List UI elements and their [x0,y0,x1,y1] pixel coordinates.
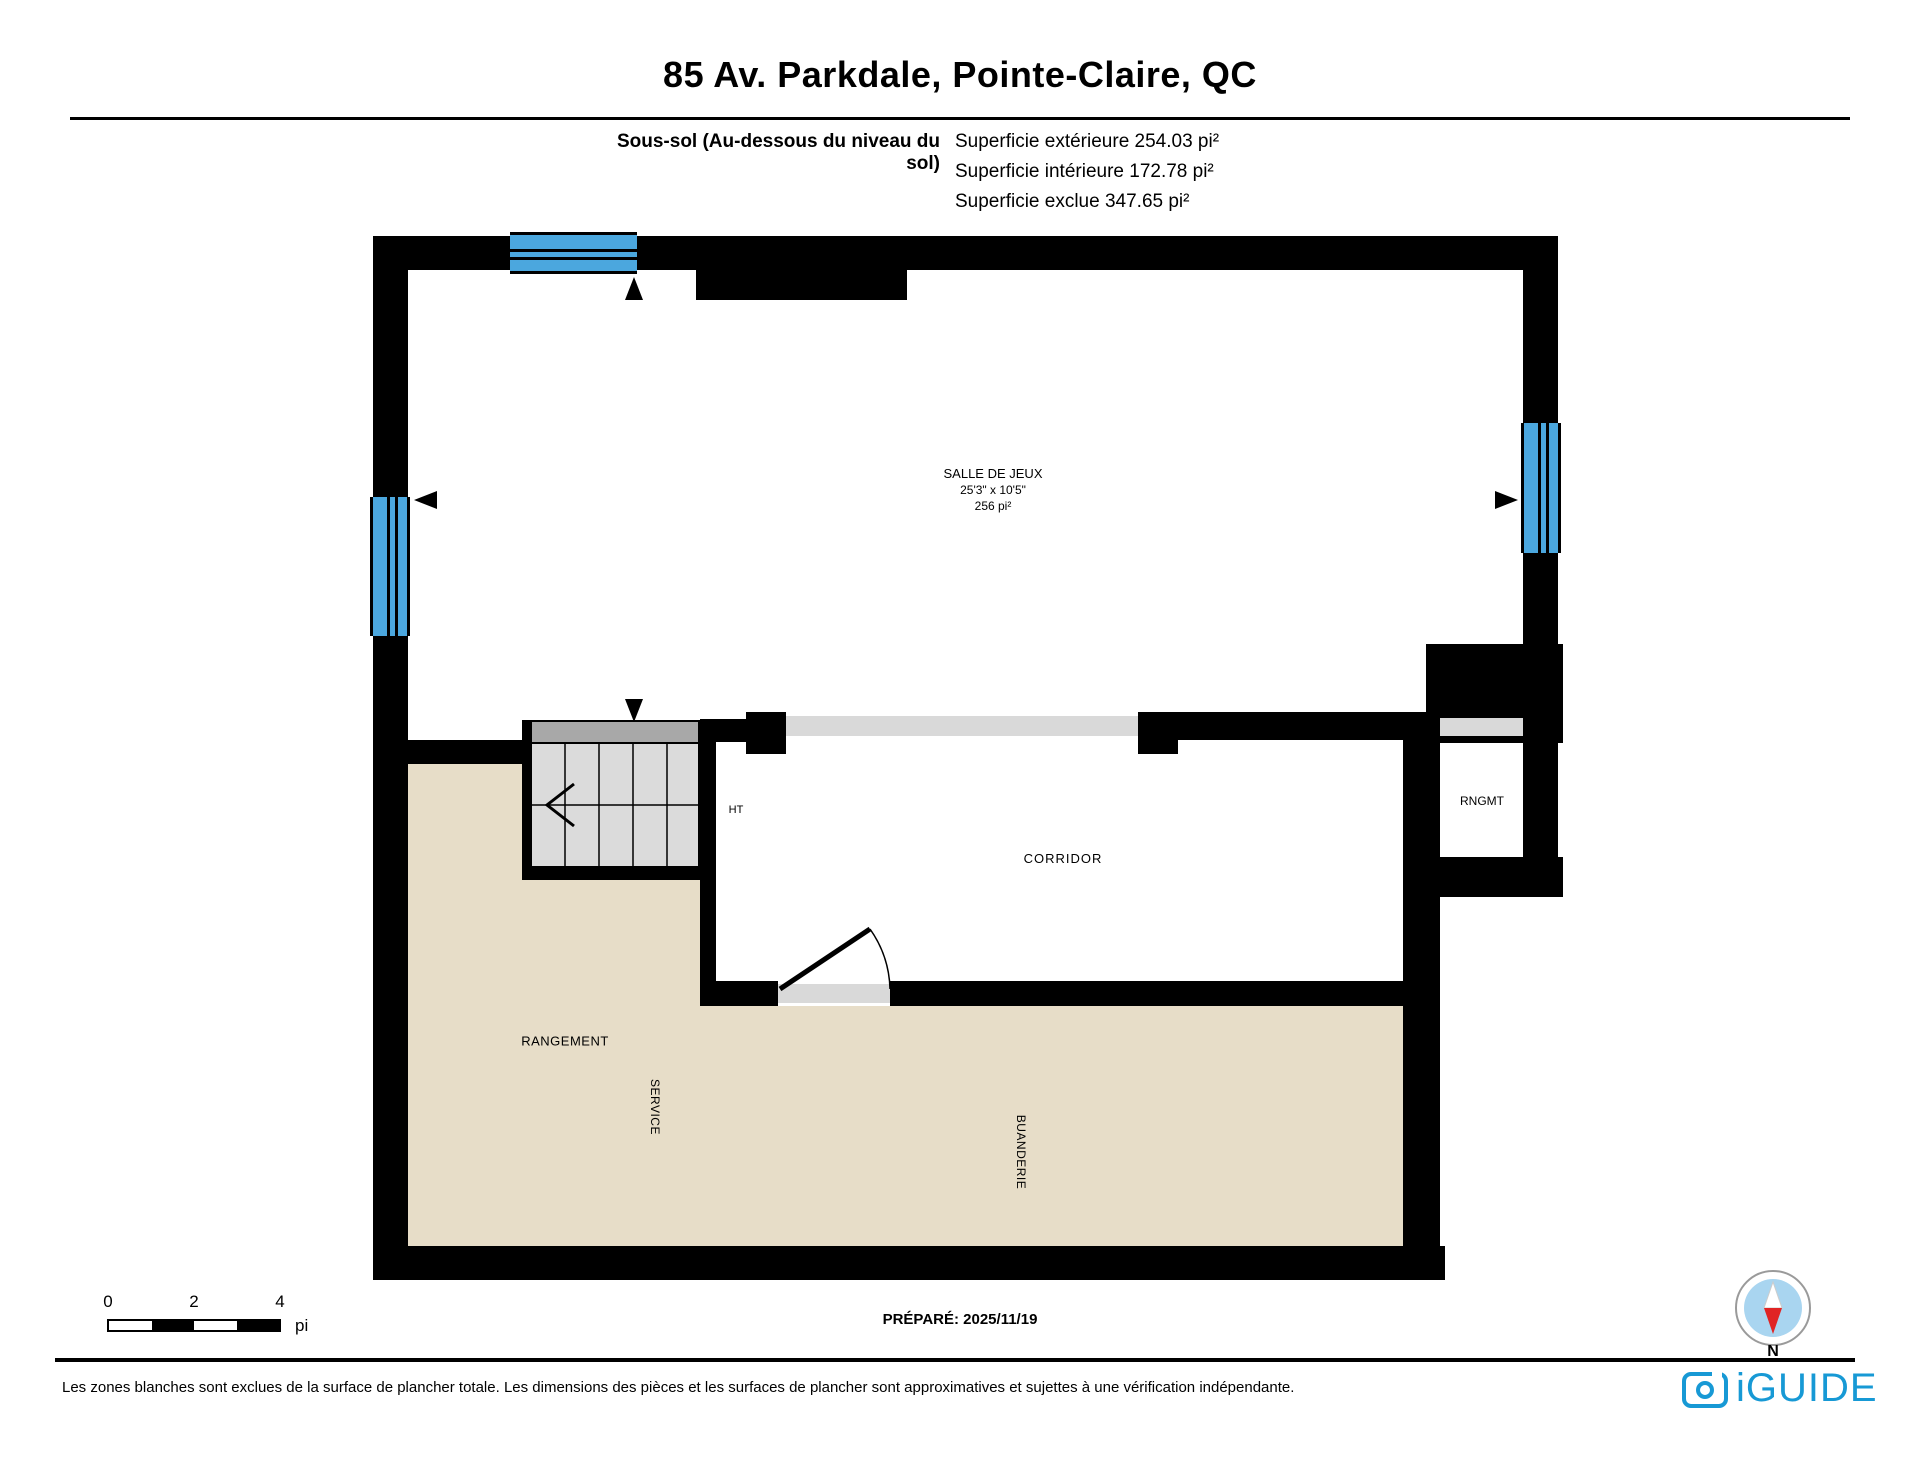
opening-salle-corridor [786,716,1138,736]
label-ht: HT [729,804,744,816]
arrow-right-icon [1495,491,1518,509]
wall-left-of-stairs [408,740,530,764]
room-label-corridor: CORRIDOR [1024,851,1103,867]
door-swing-icon [760,915,900,1005]
room-label-buanderie: BUANDERIE [1014,1115,1028,1190]
floor-label: Sous-sol (Au-dessous du niveau du sol) [585,131,940,175]
window-pane-line [1538,423,1541,553]
disclaimer-text: Les zones blanches sont exclues de la su… [62,1379,1562,1396]
scale-tick-4: 4 [275,1292,284,1312]
page-title: 85 Av. Parkdale, Pointe-Claire, QC [0,54,1920,96]
wall-stub-left [746,712,786,754]
wall-corridor-bottom-right [890,981,1440,1006]
window-right [1521,423,1561,553]
scale-segment [237,1321,280,1330]
wall-corridor-top [1177,712,1432,740]
footer-rule [55,1358,1855,1362]
stairs-treads [530,742,700,868]
room-label-rngmt: RNGMT [1460,794,1504,808]
wall-left [373,236,408,1280]
scale-bar [107,1319,281,1332]
area-exterior: Superficie extérieure 254.03 pi² [955,131,1219,153]
wall-stub-right [1138,712,1178,754]
scale-tick-2: 2 [189,1292,198,1312]
window-top [510,232,637,274]
scale-tick-0: 0 [103,1292,112,1312]
title-underline [70,117,1850,120]
room-label-service: SERVICE [648,1079,662,1135]
opening-rngmt [1440,718,1523,736]
scale-segment [109,1321,152,1330]
scale-segment [194,1321,237,1330]
wall-bulkhead [696,270,907,300]
stairs-left-border [522,720,530,880]
brand-logo: iGUIDE [1682,1366,1878,1411]
window-pane-line [395,497,398,636]
window-pane-line [387,497,390,636]
brand-text: iGUIDE [1736,1366,1878,1411]
stairs-bottom-border [522,867,700,880]
brand-camera-icon [1682,1370,1728,1408]
room-area: 256 pi² [944,498,1043,514]
arrow-up-icon [625,277,643,300]
window-left [370,497,410,636]
compass-needle-icon [1744,1279,1802,1337]
room-label-rangement: RANGEMENT [521,1034,609,1049]
window-pane-line [510,257,637,260]
stairs-landing [530,720,700,744]
arrow-left-icon [414,491,437,509]
area-interior: Superficie intérieure 172.78 pi² [955,161,1214,183]
room-label-salle-de-jeux: SALLE DE JEUX 25'3" x 10'5" 256 pi² [944,466,1043,514]
area-excluded: Superficie exclue 347.65 pi² [955,191,1189,213]
wall-bottom [373,1246,1445,1280]
floorplan-page: 85 Av. Parkdale, Pointe-Claire, QC Sous-… [0,0,1920,1483]
scale-segment [152,1321,195,1330]
wall-right-of-stairs [700,719,716,981]
room-name: SALLE DE JEUX [944,466,1043,482]
prepared-date: PRÉPARÉ: 2025/11/19 [883,1311,1038,1328]
scale-unit: pi [295,1316,308,1336]
compass-icon [1735,1270,1811,1346]
wall-corridor-top-left [716,719,746,742]
window-pane-line [1546,423,1549,553]
room-dimensions: 25'3" x 10'5" [944,482,1043,498]
arrow-down-icon [625,699,643,722]
window-pane-line [510,249,637,252]
